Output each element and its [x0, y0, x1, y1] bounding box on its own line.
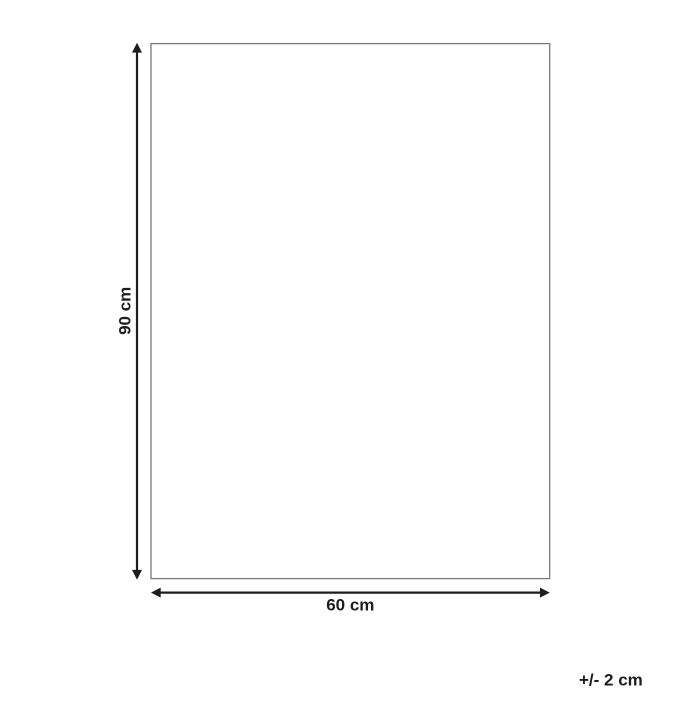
- svg-text:90 cm: 90 cm: [116, 287, 135, 335]
- svg-text:+/- 2 cm: +/- 2 cm: [579, 671, 643, 690]
- svg-text:60 cm: 60 cm: [326, 595, 374, 614]
